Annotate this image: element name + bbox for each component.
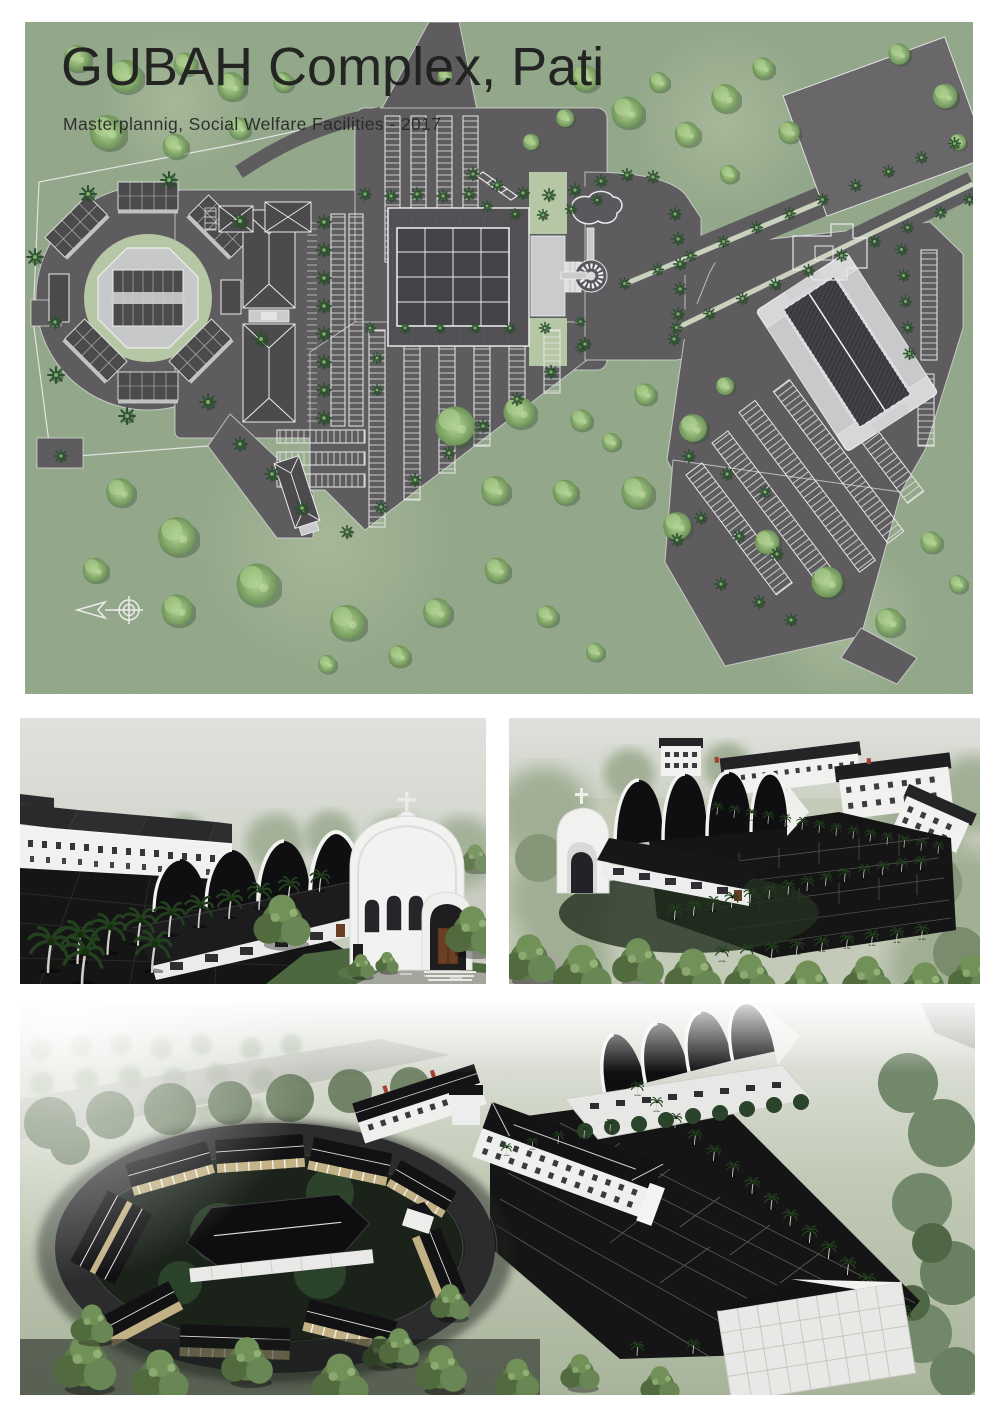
render-complex-overview bbox=[20, 1003, 975, 1395]
render-church-front-view bbox=[20, 718, 486, 984]
render-church-front-panel bbox=[20, 718, 486, 984]
render-complex-overview-panel bbox=[20, 1003, 975, 1395]
arched-windows bbox=[364, 895, 424, 933]
masterplan-panel: GUBAH Complex, Pati Masterplannig, Socia… bbox=[25, 22, 973, 694]
render-campus-aerial-view bbox=[509, 718, 980, 984]
presentation-board: GUBAH Complex, Pati Masterplannig, Socia… bbox=[0, 0, 1000, 1415]
render-campus-aerial-panel bbox=[509, 718, 980, 984]
masterplan-site-plan bbox=[25, 22, 973, 694]
